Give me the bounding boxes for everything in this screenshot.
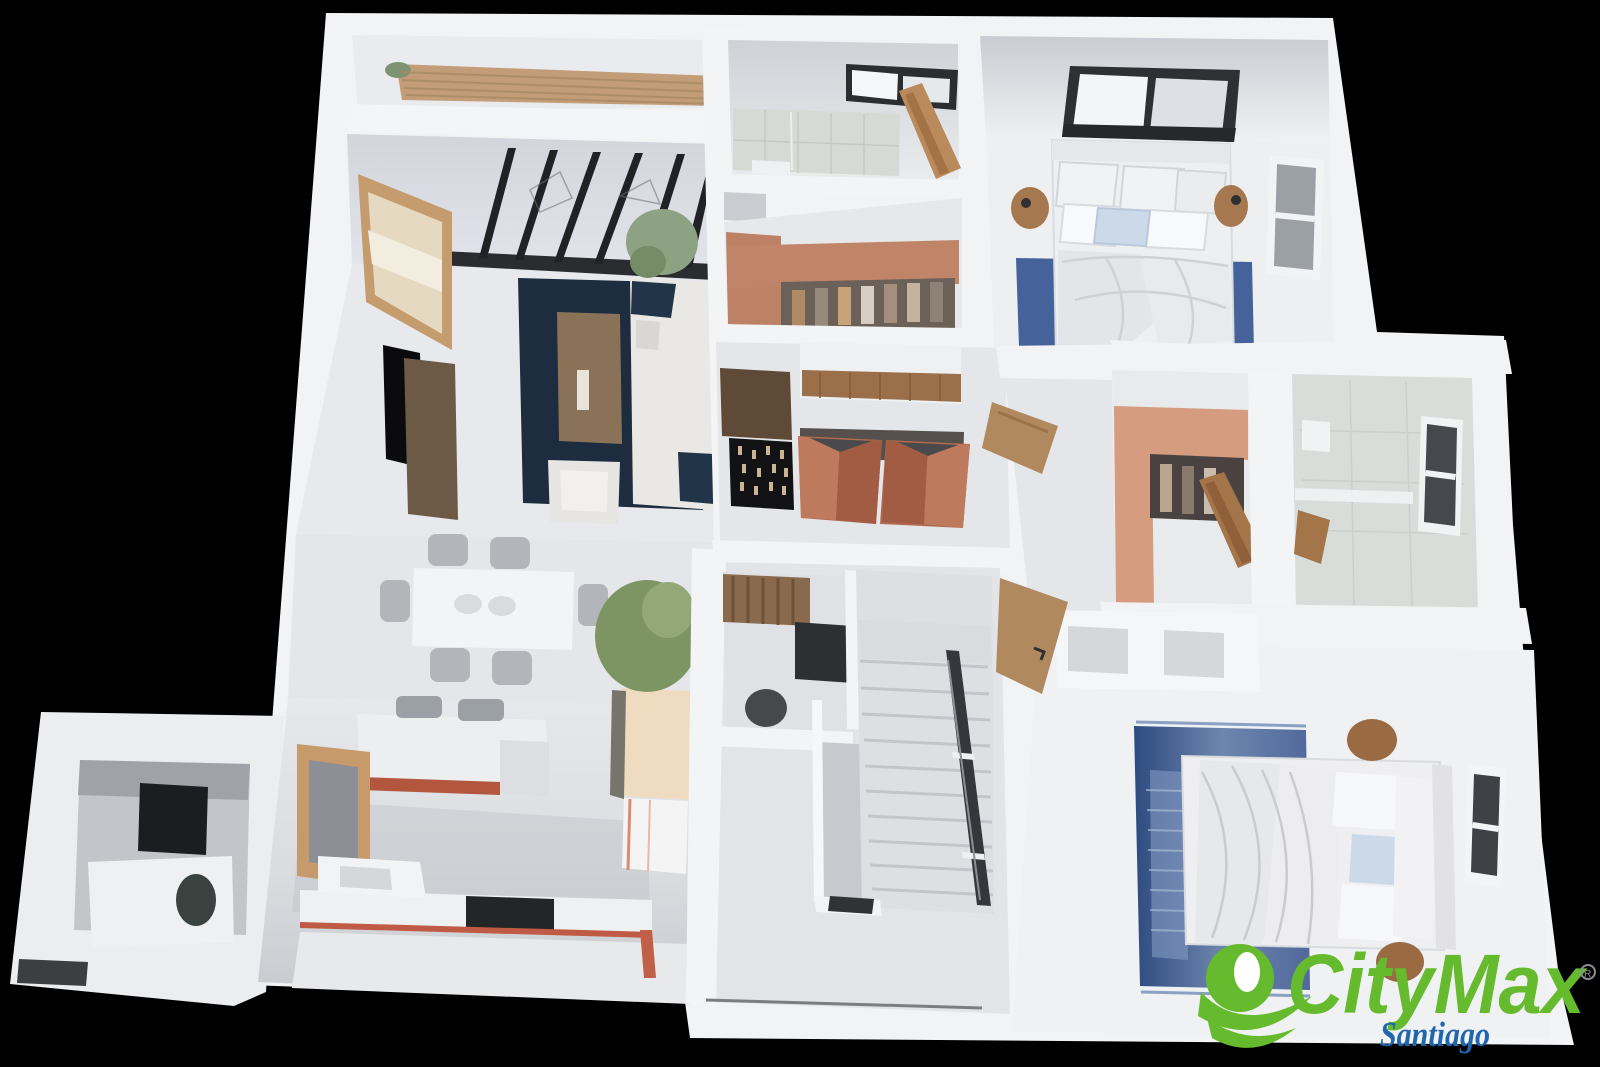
svg-text:R: R	[1584, 969, 1591, 980]
svg-text:Santiago: Santiago	[1380, 1015, 1490, 1054]
